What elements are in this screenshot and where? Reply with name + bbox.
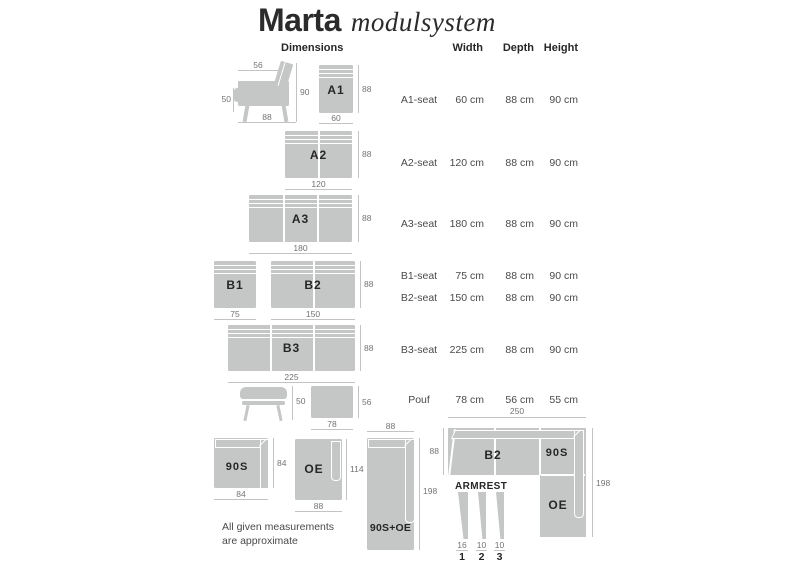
b2-width-dim: 150 <box>271 310 355 319</box>
dim-line <box>295 511 342 512</box>
dim-line <box>358 65 359 113</box>
row-name: B1-seat <box>390 269 448 283</box>
dim-line <box>367 431 414 432</box>
chair-seatheight-dim: 50 <box>218 95 231 104</box>
module-a1-label: A1 <box>319 84 353 96</box>
row-width: 180 cm <box>444 217 484 231</box>
dim-line <box>285 189 352 190</box>
dim-line <box>360 261 361 308</box>
dim-line <box>273 438 274 488</box>
row-name: A2-seat <box>390 156 448 170</box>
dim-line <box>214 319 256 320</box>
row-height: 90 cm <box>538 217 578 231</box>
dim-line <box>319 123 353 124</box>
row-depth: 88 cm <box>494 156 534 170</box>
b1-width-dim: 75 <box>214 310 256 319</box>
dim-line <box>346 439 347 500</box>
pouf-depth-dim: 56 <box>362 398 371 407</box>
chair-width-dim: 88 <box>238 113 296 122</box>
backrest-band <box>405 439 415 523</box>
series-name: modulsystem <box>351 7 496 38</box>
chair-depth-dim: 56 <box>238 61 278 70</box>
module-b3: B3 <box>228 325 355 371</box>
module-pouf-top <box>311 386 353 418</box>
module-90s: 90S <box>214 438 268 488</box>
module-b3-label: B3 <box>228 342 355 354</box>
backrest-band <box>331 441 341 481</box>
pouf-width-dim: 78 <box>311 420 353 429</box>
row-width: 78 cm <box>444 393 484 407</box>
dim-line <box>292 386 293 420</box>
row-height: 90 cm <box>538 93 578 107</box>
dim-line <box>358 131 359 178</box>
armrest-1-index: 1 <box>456 552 468 563</box>
dim-line <box>271 319 355 320</box>
armrest-3-size: 10 <box>494 541 505 550</box>
row-height: 90 cm <box>538 156 578 170</box>
height-header: Height <box>531 42 578 54</box>
table-row: A3-seat 180 cm 88 cm 90 cm <box>390 217 582 231</box>
dim-line <box>448 417 586 418</box>
row-height: 55 cm <box>538 393 578 407</box>
module-a3-label: A3 <box>249 213 352 225</box>
dim-line <box>358 386 359 418</box>
module-90s-oe-label: 90S+OE <box>367 522 414 534</box>
depth-header: Depth <box>487 42 534 54</box>
row-name: B2-seat <box>390 291 448 305</box>
a1-depth-dim: 88 <box>362 85 371 94</box>
module-90s-label: 90S <box>214 461 260 473</box>
table-row: A1-seat 60 cm 88 cm 90 cm <box>390 93 582 107</box>
row-height: 90 cm <box>538 291 578 305</box>
corner-width-dim: 250 <box>448 407 586 416</box>
oe-depth-dim: 114 <box>350 465 364 474</box>
row-name: A3-seat <box>390 217 448 231</box>
a1-width-dim: 60 <box>319 114 353 123</box>
footnote-line1: All given measurements <box>222 521 334 535</box>
module-a2: A2 <box>285 131 352 178</box>
row-width: 225 cm <box>444 343 484 357</box>
row-name: A1-seat <box>390 93 448 107</box>
corner-oe-label: OE <box>540 499 576 511</box>
s90-width-dim: 84 <box>214 490 268 499</box>
page-title: Marta modulsystem <box>258 2 496 39</box>
chair-height-dim: 90 <box>300 88 309 97</box>
chair-side-armrest <box>234 88 240 102</box>
a3-width-dim: 180 <box>249 244 352 253</box>
row-width: 60 cm <box>444 93 484 107</box>
armrest-profile-2 <box>478 492 486 539</box>
pouf-height-dim: 50 <box>296 397 305 406</box>
dim-line <box>311 429 353 430</box>
table-row: B2-seat 150 cm 88 cm 90 cm <box>390 291 582 305</box>
width-header: Width <box>437 42 483 54</box>
b3-width-dim: 225 <box>228 373 355 382</box>
marta-spec-sheet: Marta modulsystem Dimensions Width Depth… <box>0 0 792 566</box>
row-depth: 88 cm <box>494 93 534 107</box>
row-name: Pouf <box>390 393 448 407</box>
dim-line <box>358 195 359 242</box>
module-b2: B2 <box>271 261 355 308</box>
dim-line <box>233 88 234 112</box>
armrest-profile-1 <box>458 492 468 539</box>
b3-depth-dim: 88 <box>364 344 373 353</box>
dim-line <box>238 70 278 71</box>
module-90s-oe: 90S+OE <box>367 438 414 550</box>
corner-length-dim: 198 <box>596 479 610 488</box>
corner-depth-dim: 88 <box>426 447 439 456</box>
footnote-line2: are approximate <box>222 535 334 549</box>
backrest-band <box>260 439 269 489</box>
dim-line <box>228 382 355 383</box>
row-depth: 56 cm <box>494 393 534 407</box>
dim-line <box>238 122 296 123</box>
row-width: 150 cm <box>444 291 484 305</box>
armrest-2-size: 10 <box>476 541 487 550</box>
module-b2-label: B2 <box>271 279 355 291</box>
dim-line <box>419 438 420 550</box>
pouf-leg <box>243 405 249 421</box>
row-depth: 88 cm <box>494 269 534 283</box>
a3-depth-dim: 88 <box>362 214 371 223</box>
backrest-band <box>451 430 583 439</box>
dim-line <box>249 253 352 254</box>
row-width: 75 cm <box>444 269 484 283</box>
module-a3: A3 <box>249 195 352 242</box>
row-depth: 88 cm <box>494 291 534 305</box>
armrest-3-index: 3 <box>494 552 505 563</box>
dim-line <box>443 428 444 475</box>
b2-depth-dim: 88 <box>364 280 373 289</box>
s90oe-length-dim: 198 <box>423 487 437 496</box>
row-height: 90 cm <box>538 269 578 283</box>
module-b1-label: B1 <box>214 279 256 291</box>
footnote: All given measurements are approximate <box>222 521 334 548</box>
dim-line <box>360 325 361 371</box>
module-b1: B1 <box>214 261 256 308</box>
table-row: B3-seat 225 cm 88 cm 90 cm <box>390 343 582 357</box>
a2-depth-dim: 88 <box>362 150 371 159</box>
corner-b2-label: B2 <box>448 449 538 461</box>
table-row: B1-seat 75 cm 88 cm 90 cm <box>390 269 582 283</box>
oe-width-dim: 88 <box>295 502 342 511</box>
module-oe-label: OE <box>295 463 333 475</box>
row-width: 120 cm <box>444 156 484 170</box>
module-a2-label: A2 <box>285 149 352 161</box>
module-oe: OE <box>295 439 342 500</box>
row-depth: 88 cm <box>494 343 534 357</box>
dim-line <box>214 499 268 500</box>
brand-name: Marta <box>258 2 341 39</box>
armrest-title: ARMREST <box>455 481 507 492</box>
table-row: Pouf 78 cm 56 cm 55 cm <box>390 393 582 407</box>
row-height: 90 cm <box>538 343 578 357</box>
s90oe-width-dim: 88 <box>367 422 414 431</box>
row-depth: 88 cm <box>494 217 534 231</box>
pouf-side-cushion <box>240 387 287 399</box>
module-a1: A1 <box>319 65 353 113</box>
table-row: A2-seat 120 cm 88 cm 90 cm <box>390 156 582 170</box>
row-name: B3-seat <box>390 343 448 357</box>
armrest-2-index: 2 <box>476 552 487 563</box>
armrest-1-size: 16 <box>456 541 468 550</box>
dimensions-header: Dimensions <box>281 42 343 54</box>
armrest-profile-3 <box>496 492 504 539</box>
a2-width-dim: 120 <box>285 180 352 189</box>
s90-depth-dim: 84 <box>277 459 286 468</box>
pouf-leg <box>276 405 282 421</box>
dim-line <box>592 428 593 537</box>
corner-90s-label: 90S <box>538 447 576 459</box>
dim-line <box>296 63 297 122</box>
